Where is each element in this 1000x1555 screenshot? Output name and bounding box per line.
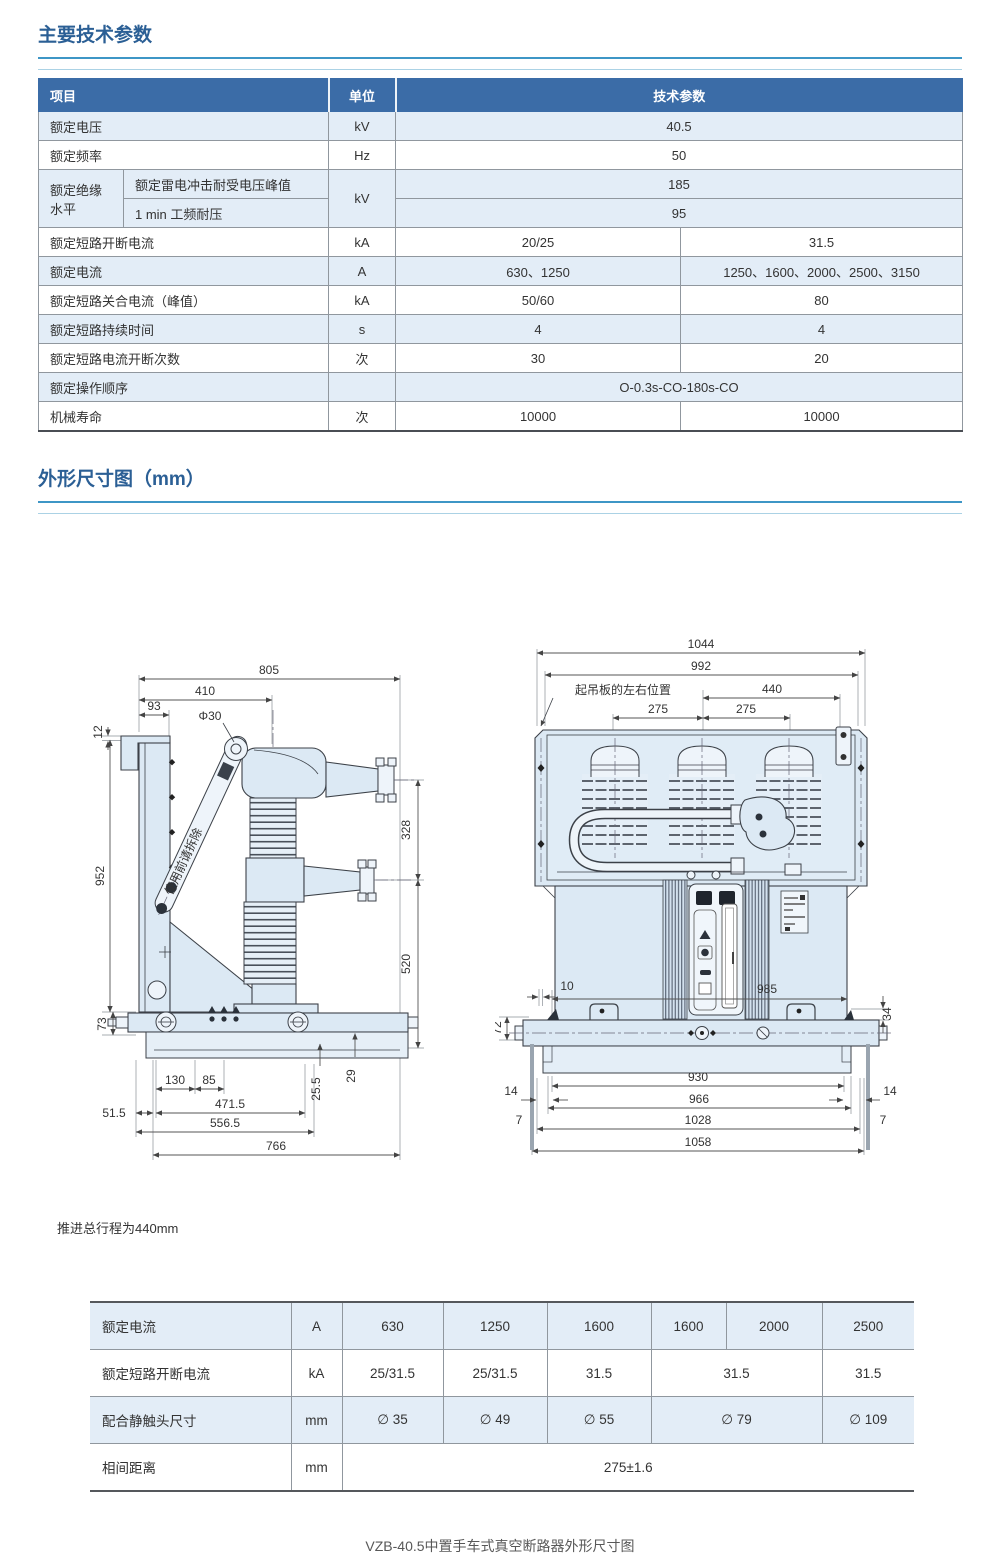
- dim-985: 985: [757, 982, 777, 996]
- section-title-dimensions: 外形尺寸图（mm）: [38, 468, 962, 492]
- table-row: 额定电流 A 630 1250 1600 1600 2000 2500: [90, 1302, 914, 1350]
- dim-73: 73: [95, 1017, 109, 1031]
- table-row: 额定频率 Hz 50: [39, 141, 963, 170]
- tech-params-table: 项目 单位 技术参数 额定电压 kV 40.5 额定频率 Hz 50 额定绝缘水…: [38, 78, 963, 432]
- dim-85: 85: [202, 1073, 216, 1087]
- dim-275-left: 275: [648, 702, 668, 716]
- travel-note: 推进总行程为440mm: [57, 1218, 962, 1237]
- table-row: 额定短路开断电流 kA 20/25 31.5: [39, 228, 963, 257]
- insulator-pole: [582, 738, 648, 858]
- table-row: 额定短路持续时间 s 4 4: [39, 315, 963, 344]
- dim-25-5: 25.5: [309, 1077, 323, 1101]
- dim-966: 966: [689, 1092, 709, 1106]
- insulator-pole: [669, 738, 735, 858]
- side-view-drawing: 使用前请拆除: [58, 652, 478, 1172]
- front-view-drawing: 1044 992 起吊板的左右位置 440 275 275 10 985 34 …: [495, 634, 970, 1179]
- table-row: 额定绝缘水平 额定雷电冲击耐受电压峰值 kV 185: [39, 170, 963, 199]
- dim-440: 440: [762, 682, 782, 696]
- dim-7-right: 7: [880, 1113, 887, 1127]
- dim-471-5: 471.5: [215, 1097, 245, 1111]
- table-row: 相间距离 mm 275±1.6: [90, 1444, 914, 1492]
- datasheet-page: 主要技术参数 项目 单位 技术参数 额定电压 kV 40.5 额定频率 Hz 5…: [0, 0, 1000, 1555]
- dim-130: 130: [165, 1073, 185, 1087]
- table-header-row: 项目 单位 技术参数: [39, 79, 963, 112]
- dim-992: 992: [691, 659, 711, 673]
- dim-1058: 1058: [685, 1135, 712, 1149]
- dim-930: 930: [688, 1070, 708, 1084]
- dim-10: 10: [560, 979, 574, 993]
- table-row: 配合静触头尺寸 mm ∅ 35 ∅ 49 ∅ 55 ∅ 79 ∅ 109: [90, 1397, 914, 1444]
- skirt: [543, 1046, 851, 1073]
- dim-14-right: 14: [883, 1084, 897, 1098]
- col-header-value: 技术参数: [396, 79, 963, 112]
- lifting-plate-label: 起吊板的左右位置: [575, 682, 671, 697]
- dim-766: 766: [266, 1139, 286, 1153]
- table-row: 额定电流 A 630、1250 1250、1600、2000、2500、3150: [39, 257, 963, 286]
- table-row: 额定操作顺序 O-0.3s-CO-180s-CO: [39, 373, 963, 402]
- dim-952: 952: [93, 866, 107, 886]
- wheel: [288, 1012, 308, 1032]
- dim-72: 72: [495, 1021, 504, 1035]
- breaker-front-structure: [509, 727, 893, 1150]
- table-row: 额定短路开断电流 kA 25/31.5 25/31.5 31.5 31.5 31…: [90, 1350, 914, 1397]
- section-rule: [38, 57, 962, 59]
- dim-410: 410: [195, 684, 215, 698]
- dim-14-left: 14: [504, 1084, 518, 1098]
- dim-12: 12: [91, 725, 105, 739]
- dim-29: 29: [344, 1069, 358, 1083]
- dim-51-5: 51.5: [102, 1106, 126, 1120]
- section-rule-light: [38, 69, 962, 70]
- table-row: 额定短路电流开断次数 次 30 20: [39, 344, 963, 373]
- breaker-side-structure: 使用前请拆除: [108, 710, 418, 1058]
- dim-93: 93: [147, 699, 161, 713]
- dim-328: 328: [399, 820, 413, 840]
- col-header-unit: 单位: [329, 79, 396, 112]
- dimension-drawings: 使用前请拆除: [0, 514, 1000, 1202]
- table-row: 额定电压 kV 40.5: [39, 112, 963, 141]
- dim-805: 805: [259, 663, 279, 677]
- table-row: 额定短路关合电流（峰值） kA 50/60 80: [39, 286, 963, 315]
- wheel: [156, 1012, 176, 1032]
- table-row: 1 min 工频耐压 95: [39, 199, 963, 228]
- dim-275-right: 275: [736, 702, 756, 716]
- dim-34: 34: [880, 1007, 894, 1021]
- dim-1028: 1028: [685, 1113, 712, 1127]
- section-rule: [38, 501, 962, 503]
- table-row: 机械寿命 次 10000 10000: [39, 402, 963, 432]
- dim-520: 520: [399, 954, 413, 974]
- selection-table: 额定电流 A 630 1250 1600 1600 2000 2500 额定短路…: [90, 1301, 914, 1492]
- col-header-item: 项目: [39, 79, 329, 112]
- dim-556-5: 556.5: [210, 1116, 240, 1130]
- dim-phi30: Φ30: [199, 709, 222, 723]
- dim-7-left: 7: [516, 1113, 523, 1127]
- dim-1044: 1044: [688, 637, 715, 651]
- figure-caption: VZB-40.5中置手车式真空断路器外形尺寸图: [38, 1536, 962, 1555]
- section-title-tech-params: 主要技术参数: [38, 24, 962, 48]
